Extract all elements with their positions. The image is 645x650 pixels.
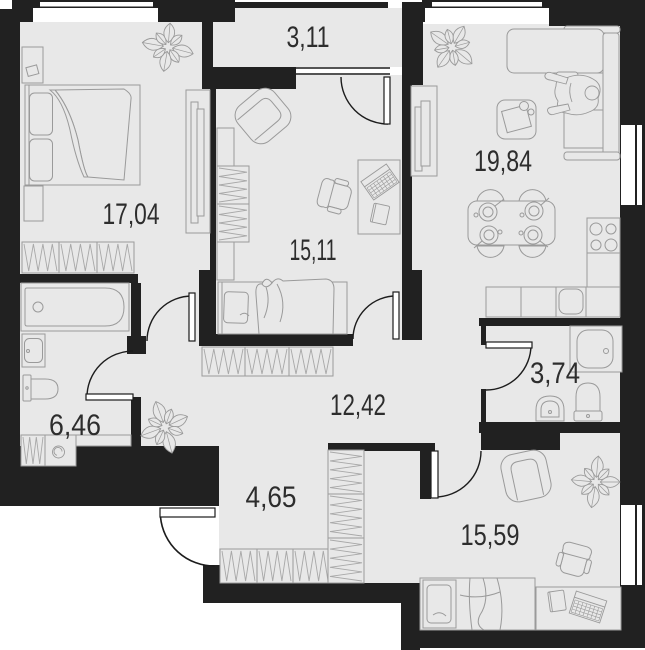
svg-text:6,46: 6,46 bbox=[49, 409, 101, 442]
svg-text:15,11: 15,11 bbox=[290, 234, 337, 267]
svg-text:3,74: 3,74 bbox=[530, 357, 580, 390]
svg-text:19,84: 19,84 bbox=[474, 145, 532, 178]
svg-text:15,59: 15,59 bbox=[461, 519, 520, 552]
svg-text:12,42: 12,42 bbox=[330, 389, 386, 422]
svg-text:17,04: 17,04 bbox=[103, 198, 160, 231]
svg-text:3,11: 3,11 bbox=[287, 21, 330, 54]
svg-text:4,65: 4,65 bbox=[246, 481, 297, 514]
